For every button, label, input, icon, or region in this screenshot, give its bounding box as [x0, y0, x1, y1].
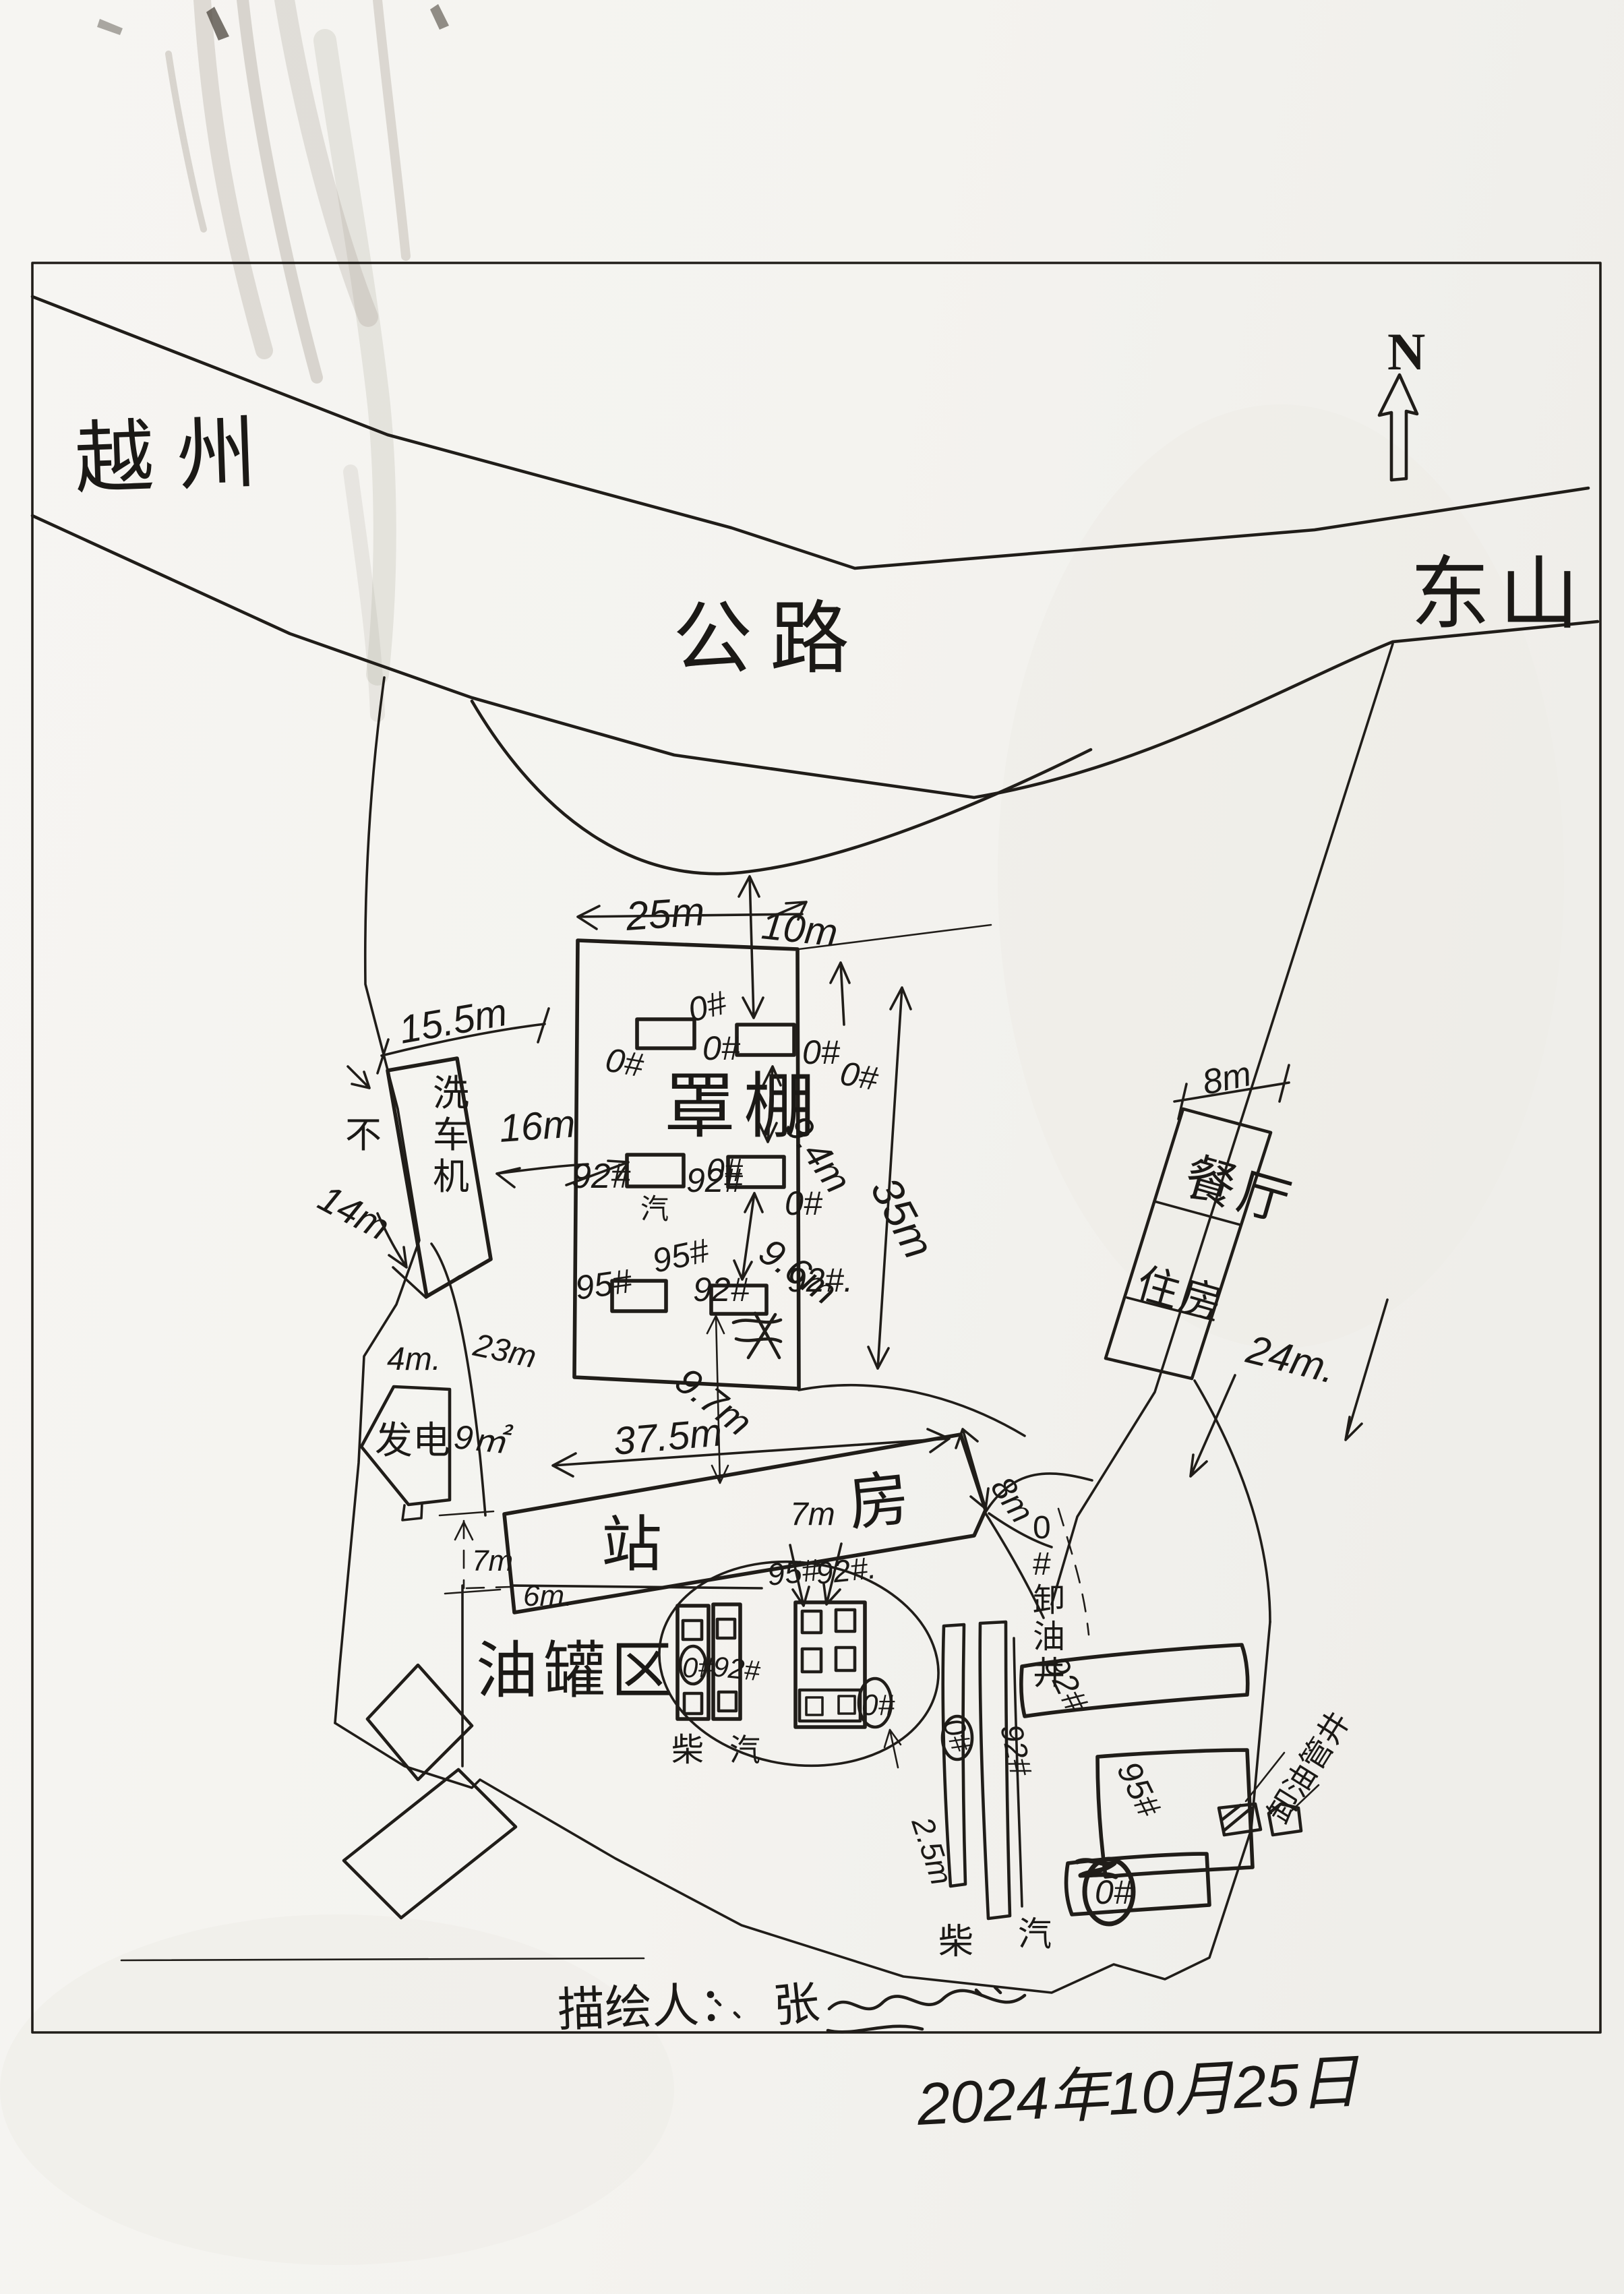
strip-fuel-gasoline: 汽: [1018, 1915, 1052, 1953]
station-label-right: 房: [845, 1465, 913, 1538]
island-label: 0#: [702, 1029, 741, 1067]
tank1-label: 0#: [682, 1652, 714, 1683]
tank-fuel-diesel: 柴: [671, 1732, 704, 1768]
paper-shading-2: [0, 1914, 674, 2265]
dim-canopy-width: 25m: [624, 888, 706, 939]
island-label: 0#: [785, 1184, 823, 1222]
dim-gap-4m: 4m.: [387, 1341, 441, 1377]
island-label: 95#: [573, 1262, 635, 1307]
region-label-yuezhou: 越州: [73, 408, 280, 504]
tank-grid-0-label: 0#: [862, 1689, 895, 1722]
dim-gap-canopy: 16m: [498, 1101, 576, 1151]
scanned-sheet: 越州 公路 东山 N 洗车机 不 15.5m 14m 16m 罩棚 0# 0# …: [0, 0, 1624, 2294]
station-label-left: 站: [601, 1511, 662, 1579]
station-width-label: 7m: [790, 1497, 835, 1532]
generator-label: 发电: [375, 1419, 450, 1461]
island-label: 0#: [603, 1041, 647, 1085]
island-label: 0#: [706, 1153, 744, 1188]
dim-gap-road: 10m: [760, 903, 840, 955]
drawer-name: 张: [771, 1976, 822, 2032]
carwash-label: 洗车机: [433, 1073, 469, 1197]
region-label-highway: 公路: [673, 595, 867, 684]
hand-drawn-site-plan: 越州 公路 东山 N 洗车机 不 15.5m 14m 16m 罩棚 0# 0# …: [0, 0, 1624, 2294]
tank-fuel-gasoline: 汽: [729, 1732, 760, 1768]
bay-row-0-label: 0#: [1095, 1873, 1133, 1911]
tank2-label: 92#: [711, 1650, 762, 1687]
compass-north-letter: N: [1387, 322, 1425, 381]
island-sub-label: 汽: [640, 1193, 669, 1225]
tank-farm-label: 油罐区: [476, 1637, 678, 1706]
strip-fuel-diesel: 柴: [938, 1923, 973, 1962]
drawer-label: 描绘人：: [557, 1977, 748, 2036]
island-label: 0#: [802, 1033, 841, 1071]
dim-tank-gap: 6m.: [523, 1579, 572, 1612]
region-label-dongshan: 东山: [1410, 550, 1588, 639]
carwash-note: 不: [345, 1115, 382, 1155]
island-label: 0#: [837, 1054, 882, 1098]
